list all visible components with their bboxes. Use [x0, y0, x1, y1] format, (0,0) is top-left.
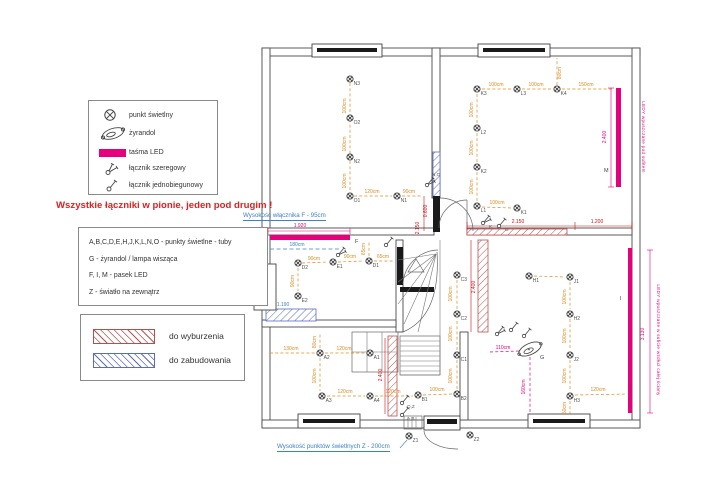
light-label-D1: D1	[373, 263, 380, 269]
letter-legend-line: F, I, M - pasek LED	[89, 268, 257, 285]
warning-note: Wszystkie łączniki w pionie, jeden pod d…	[56, 200, 341, 211]
switch-single-icon	[509, 328, 512, 331]
switch-label: A,B	[407, 416, 414, 421]
series-switch-icon	[97, 160, 129, 177]
dimension-label: 100cm	[448, 368, 454, 383]
dimension-label: 100cm	[342, 136, 348, 151]
light-label-Z2: Z2	[474, 437, 480, 443]
light-label-N3: N3	[354, 81, 361, 87]
led-strip-F	[270, 235, 350, 240]
switch-arm	[512, 323, 517, 329]
led-strip-M	[616, 88, 621, 187]
light-label-C3: C3	[461, 277, 468, 283]
light-label-J2: J2	[574, 357, 580, 363]
annotation-switch-f-height: Wysokość włącznika F - 95cm	[243, 212, 326, 221]
hatch-legend: do wyburzenia do zabudowania	[80, 314, 245, 381]
wall	[262, 228, 434, 235]
legend-label: łącznik jednobiegunowy	[129, 182, 203, 189]
hatch-red	[467, 229, 567, 235]
led-strip-icon	[97, 146, 129, 160]
dimension-label: 100cm	[562, 368, 568, 383]
door-arc	[424, 431, 458, 449]
window-glass	[483, 48, 545, 52]
switch-arm	[500, 219, 505, 225]
dimension-label: 3.130	[640, 328, 646, 341]
dimension-label: 0.600	[423, 205, 429, 218]
dimension-label: 2.400	[602, 131, 608, 144]
dimension-label: 2.400	[471, 281, 477, 294]
dimension-label: 80cm	[312, 336, 318, 348]
switch-arm	[387, 238, 392, 244]
dimension-label: 120cm	[337, 389, 352, 395]
light-label-N2: N2	[354, 159, 361, 165]
led-strip-label-M: M	[604, 168, 609, 174]
red-hatch-swatch	[93, 329, 155, 344]
switch-single-icon	[400, 401, 403, 404]
dimension-label: 2.150	[512, 219, 525, 225]
dimension-label: 90cm	[308, 256, 320, 262]
led-strip-label-F: F	[355, 239, 359, 245]
legend-label: żyrandol	[129, 130, 155, 137]
hatch-label: do wyburzenia	[169, 331, 224, 341]
light-label-A4: A4	[374, 398, 380, 404]
hatch-label: do zabudowania	[169, 355, 231, 365]
light-label-C2: C2	[461, 316, 468, 322]
light-point-icon	[97, 107, 129, 123]
light-label-E1: E1	[337, 264, 343, 270]
light-label-C1: C1	[461, 357, 468, 363]
dimension-label: 80cm	[557, 67, 563, 79]
single-pole-switch-icon	[97, 177, 129, 193]
dimension-label: 120cm	[590, 387, 605, 393]
window-glass	[317, 48, 377, 52]
light-label-L3: L3	[521, 91, 527, 97]
dimension-label: 100cm	[342, 98, 348, 113]
dimension-label: 100cm	[312, 368, 318, 383]
switch-arm	[403, 396, 408, 402]
hatch-blue	[266, 309, 316, 321]
door-arc	[408, 259, 424, 272]
hatch-red	[388, 336, 397, 416]
symbol-legend: punkt świetlny żyrandol taśma LED	[88, 100, 218, 195]
switch-series-icon	[481, 221, 484, 224]
dimension-label: 100cm	[469, 102, 475, 117]
dimension-label: 100cm	[469, 179, 475, 194]
dimension-label: 100cm	[528, 82, 543, 88]
dimension-label: 1.200	[591, 219, 604, 225]
switch-series-icon	[425, 183, 428, 186]
dimension-label: 65cm	[361, 243, 367, 255]
connection-line	[490, 351, 519, 352]
legend-item-led-strip: taśma LED	[97, 144, 209, 160]
led-strip-I	[628, 248, 632, 413]
switch-arm	[525, 329, 530, 335]
dimension-label: 100cm	[429, 387, 444, 393]
connection-line	[338, 261, 364, 262]
stairs-outline	[400, 336, 440, 375]
letter-legend-line: Z - światło na zewnątrz	[89, 285, 257, 302]
legend-label: punkt świetlny	[129, 112, 173, 119]
annotation-z-lights-height: Wysokość punktów świetlnych Z - 200cm	[277, 443, 390, 452]
light-label-N1: N1	[401, 198, 408, 204]
light-label-A2: A2	[324, 355, 330, 361]
blue-hatch-swatch	[93, 353, 155, 368]
light-label-Z1: Z1	[413, 438, 419, 444]
legend-item-chandelier: żyrandol	[97, 123, 209, 144]
switch-series-icon	[495, 332, 498, 335]
dimension-label: 130cm	[283, 346, 298, 352]
dimension-label: 1.190	[277, 302, 290, 308]
switch-arm	[403, 408, 408, 414]
switch-label: N,O	[432, 172, 441, 177]
dimension-label: 150cm	[578, 82, 593, 88]
light-label-H1: H1	[533, 278, 540, 284]
light-label-A3: A3	[326, 398, 332, 404]
dimension-line	[400, 440, 407, 448]
light-label-L1: L1	[481, 208, 487, 214]
door-leaf	[400, 287, 434, 292]
hatch-red	[478, 240, 488, 332]
dimension-label: 50cm	[562, 402, 568, 414]
dimension-label: 65cm	[377, 254, 389, 260]
window-glass	[427, 419, 457, 424]
vertical-led-note: LEDY wpuszczane w suficie wzdłuż całej ś…	[656, 284, 661, 396]
floor-plan-page: FMI100cm100cm100cm120cm90cm100cm100cm150…	[0, 0, 710, 499]
dimension-label: 120cm	[364, 189, 379, 195]
legend-label: taśma LED	[129, 149, 164, 156]
light-label-O1: O1	[354, 198, 361, 204]
hatch-legend-item-buildin: do zabudowania	[93, 348, 232, 372]
switch-single-icon	[384, 243, 387, 246]
dimension-label: 120cm	[336, 346, 351, 352]
connection-line	[482, 207, 512, 208]
connection-line	[534, 276, 565, 277]
dimension-label: 100cm	[342, 173, 348, 188]
light-label-E2: E2	[302, 298, 308, 304]
dimension-label: 100cm	[489, 200, 504, 206]
legend-item-series-switch: łącznik szeregowy	[97, 161, 209, 177]
wall	[632, 48, 640, 428]
light-label-A1: A1	[374, 355, 380, 361]
led-strip-label-I: I	[620, 296, 622, 302]
light-label-J1: J1	[574, 279, 580, 285]
letter-legend-line: A,B,C,D,E,H,J,K,L,N,O - punkty świetlne …	[89, 235, 257, 252]
dimension-label: 2.400	[378, 369, 384, 382]
chandelier-icon	[97, 124, 129, 143]
light-label-H3: H3	[574, 398, 581, 404]
dimension-label: 100cm	[448, 286, 454, 301]
hatch-legend-item-demolish: do wyburzenia	[93, 324, 232, 348]
dimension-label: 90cm	[290, 275, 296, 287]
legend-label: łącznik szeregowy	[129, 165, 186, 172]
dimension-label: 90cm	[344, 254, 356, 260]
switch-series-icon	[336, 253, 339, 256]
light-label-B2: B2	[461, 396, 467, 402]
switch-label: G	[505, 227, 509, 232]
light-label-B1: B1	[422, 397, 428, 403]
dimension-label: 100cm	[562, 289, 568, 304]
light-label-O2: O2	[354, 120, 361, 126]
dimension-label: 100cm	[562, 328, 568, 343]
dimension-label: 100cm	[448, 326, 454, 341]
wall	[460, 332, 468, 420]
connection-line	[575, 394, 627, 395]
dimension-label: 120cm	[385, 389, 400, 395]
dimension-label: 180cm	[289, 242, 304, 248]
door-arc	[439, 200, 467, 228]
switch-single-icon	[497, 224, 500, 227]
light-label-L2: L2	[481, 130, 487, 136]
window-glass	[533, 419, 585, 423]
chandelier-center	[528, 349, 530, 351]
switch-single-icon	[522, 334, 525, 337]
vertical-led-note: LEDY wpuszczane pod sufitem	[641, 101, 646, 173]
legend-item-single-pole-switch: łącznik jednobiegunowy	[97, 177, 209, 193]
connection-line	[302, 262, 328, 263]
switch-single-icon	[400, 413, 403, 416]
dimension-label: 1.920	[294, 223, 307, 229]
light-label-D2: D2	[302, 265, 309, 271]
dimension-label: 100cm	[469, 140, 475, 155]
light-label-K2: K2	[481, 169, 487, 175]
chandelier-label: G	[540, 355, 544, 361]
letter-legend: A,B,C,D,E,H,J,K,L,N,O - punkty świetlne …	[78, 227, 268, 306]
connection-line	[423, 394, 452, 395]
light-label-K1: K1	[521, 210, 527, 216]
letter-legend-line: G - żyrandol / lampa wisząca	[89, 252, 257, 269]
light-label-K4: K4	[561, 91, 567, 97]
dimension-label: 160cm	[521, 379, 527, 394]
light-label-H2: H2	[574, 316, 581, 322]
dimension-label: 100cm	[488, 82, 503, 88]
dimension-label: 2.150	[415, 222, 421, 235]
window-glass	[303, 419, 355, 423]
light-label-K3: K3	[481, 91, 487, 97]
legend-item-light-point: punkt świetlny	[97, 107, 209, 123]
dimension-label: 110cm	[496, 345, 511, 351]
dimension-label: 90cm	[403, 189, 415, 195]
